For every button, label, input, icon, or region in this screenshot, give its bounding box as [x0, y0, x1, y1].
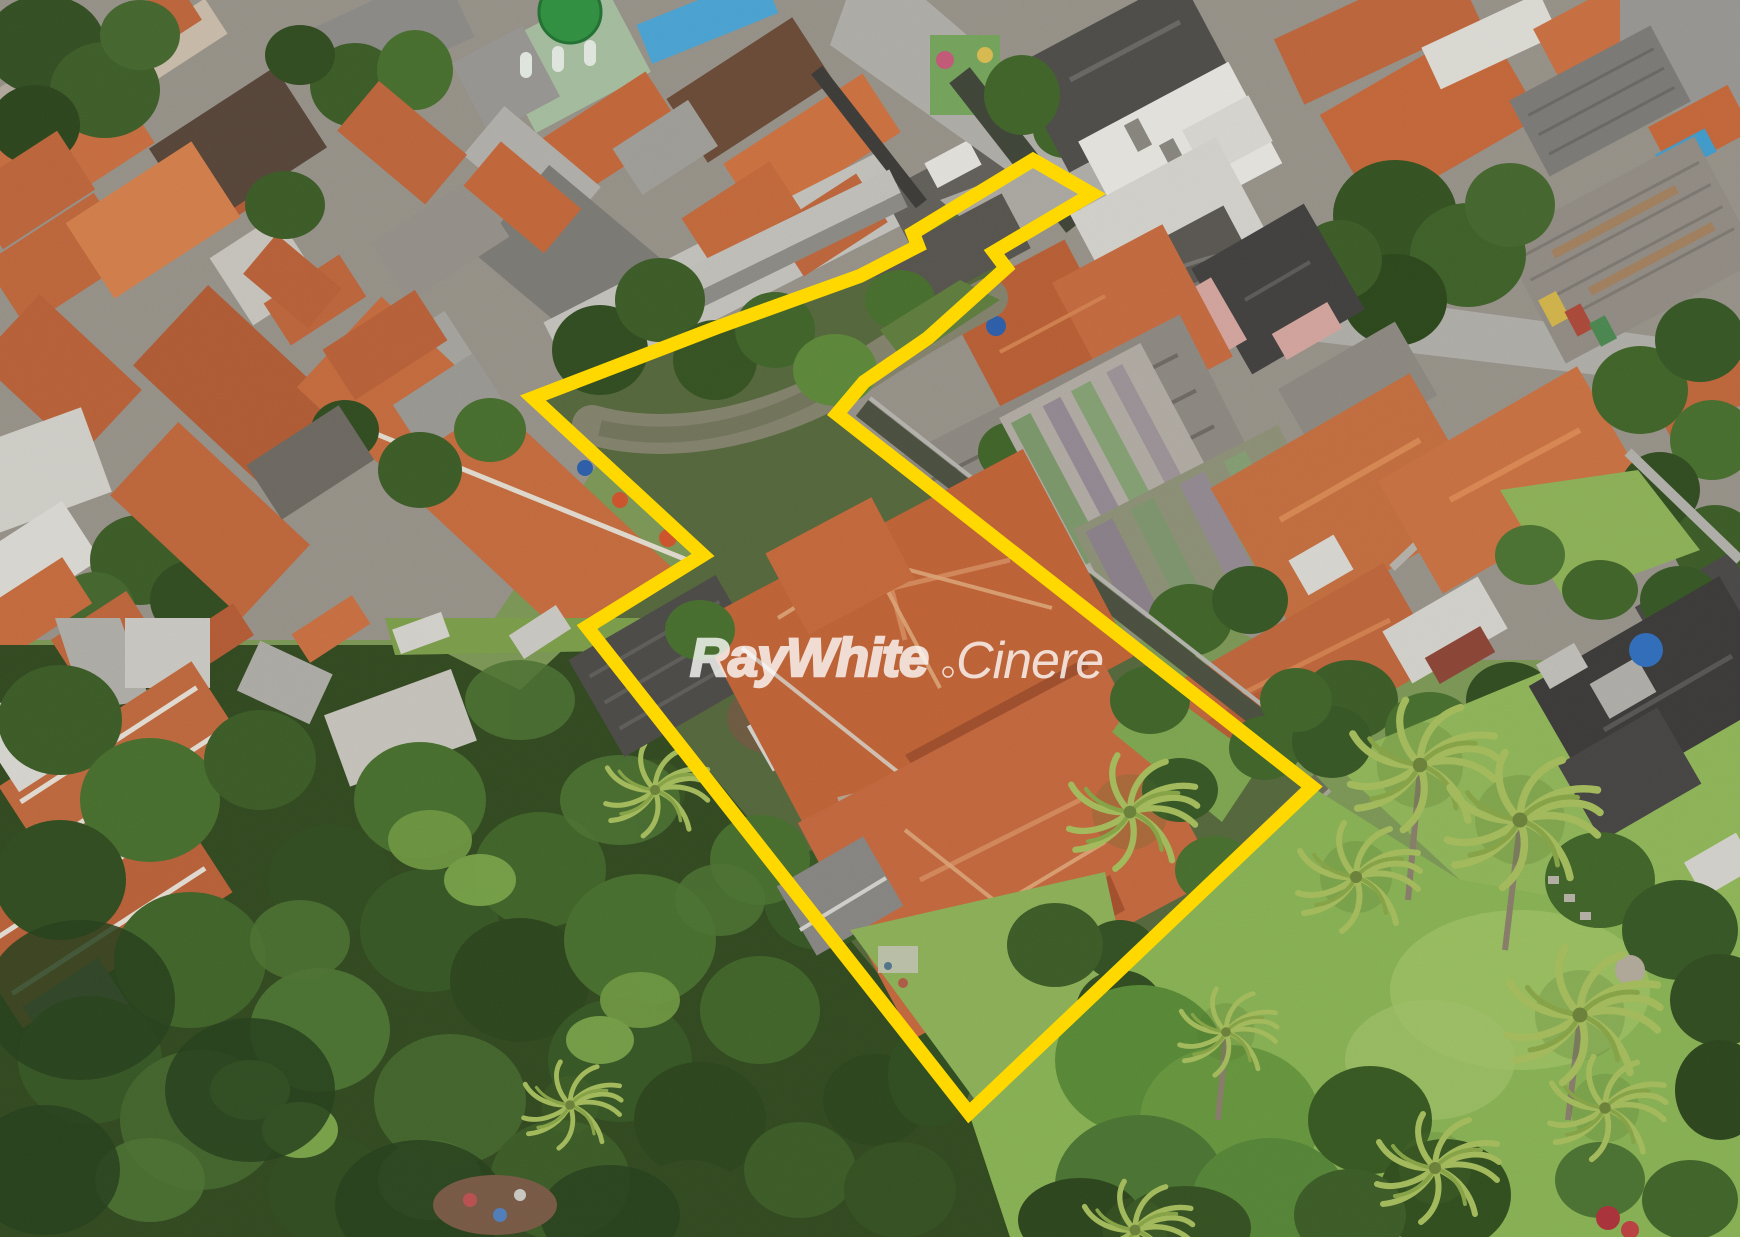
svg-text:Cinere: Cinere	[956, 632, 1103, 690]
svg-text:RayWhite: RayWhite	[690, 628, 928, 688]
